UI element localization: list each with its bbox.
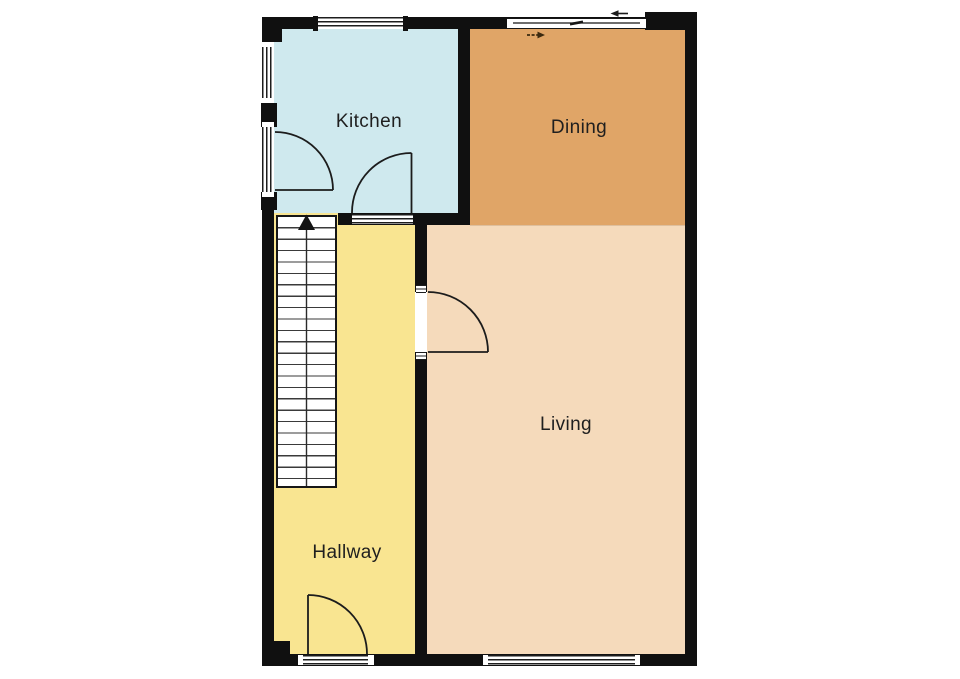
- room-label-living: Living: [540, 414, 592, 436]
- dining-living-boundary: [470, 225, 685, 226]
- kitchen-left-window: [262, 47, 274, 98]
- window-pad: [262, 98, 274, 103]
- floor-plan: Kitchen Dining Living Hallway: [0, 0, 960, 679]
- window-pad: [635, 655, 640, 665]
- room-label-dining: Dining: [551, 117, 607, 139]
- kitchen-side-door-sill: [262, 127, 274, 192]
- kitchen-hallway-door-sill: [352, 214, 413, 224]
- hallway-living-door-sill: [416, 285, 426, 360]
- door-pad: [368, 655, 374, 665]
- wall-right: [685, 17, 697, 666]
- entrance-door-sill: [303, 655, 368, 665]
- kitchen-top-window-end-cap: [313, 16, 318, 31]
- room-living: [427, 225, 685, 655]
- wall-hallway-living-upper: [415, 225, 427, 292]
- window-pad: [262, 192, 274, 197]
- living-bottom-window: [488, 655, 635, 665]
- wall-kitchen-dining: [458, 29, 470, 225]
- room-label-kitchen: Kitchen: [336, 111, 402, 133]
- wall-block-top-left: [262, 17, 282, 42]
- kitchen-top-window: [317, 17, 403, 29]
- wall-block-top-right: [645, 12, 697, 30]
- wall-block-bottom-left: [262, 641, 290, 666]
- staircase: [276, 215, 337, 488]
- wall-hallway-living-lower: [415, 352, 427, 655]
- door-jamb: [416, 352, 426, 360]
- kitchen-top-window-end-cap: [403, 16, 408, 31]
- dining-sliding-door: [507, 18, 646, 29]
- arrow-left-icon: [611, 10, 629, 17]
- door-jamb: [416, 285, 426, 293]
- room-label-hallway: Hallway: [312, 542, 381, 564]
